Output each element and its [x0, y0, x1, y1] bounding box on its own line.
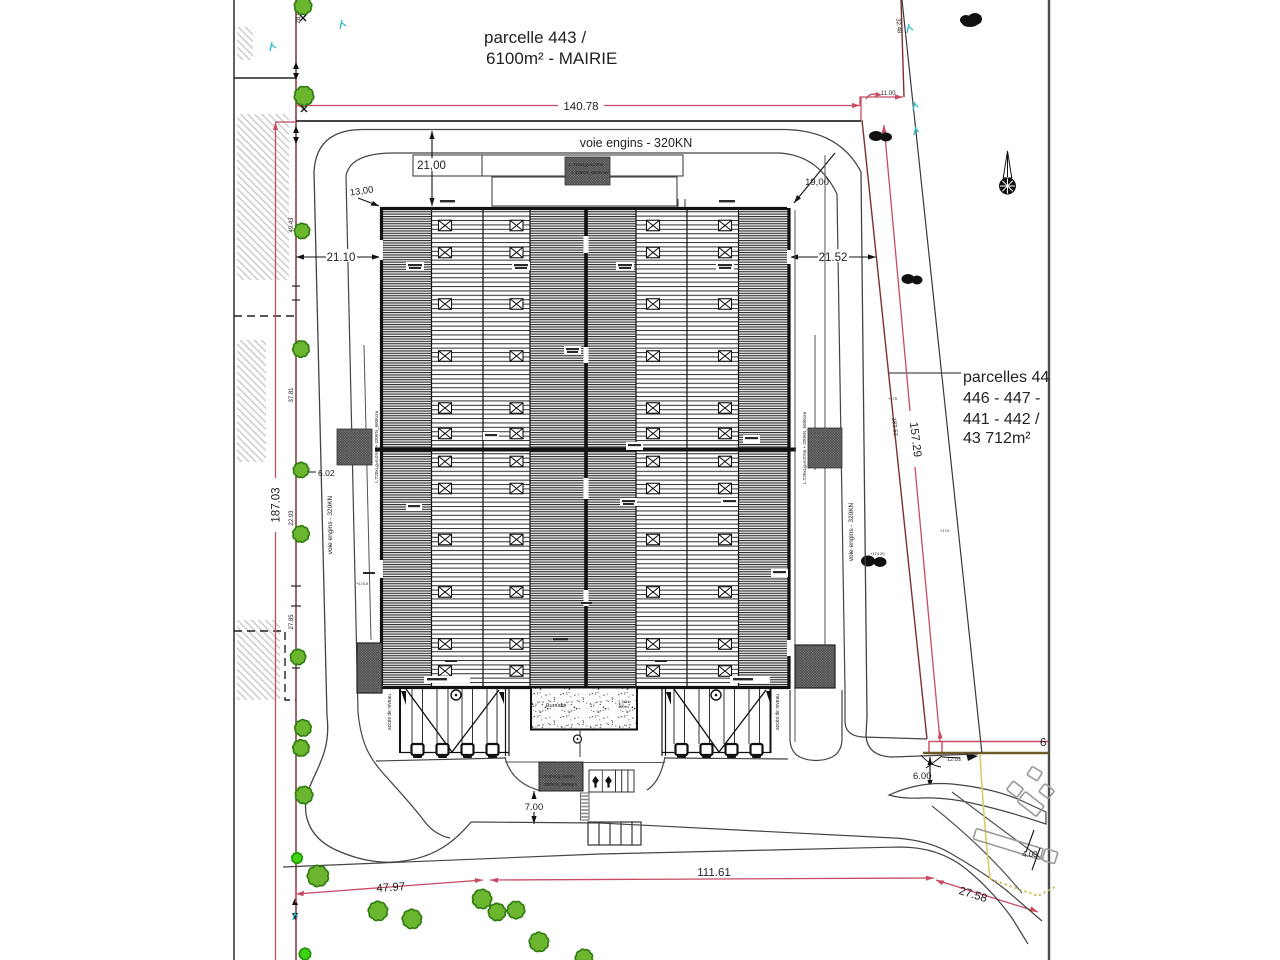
svg-text:6.00: 6.00	[913, 771, 932, 782]
svg-text:+174: +174	[940, 528, 950, 533]
svg-text:+174.20: +174.20	[870, 551, 885, 556]
svg-text:+ 320KN_660Kcm²: + 320KN_660Kcm²	[571, 170, 610, 175]
svg-text:21.10: 21.10	[327, 252, 356, 264]
svg-text:6: 6	[1040, 737, 1046, 749]
svg-text:parcelle 443 /: parcelle 443 /	[484, 28, 586, 47]
svg-text:360Kc: 360Kc	[618, 704, 629, 709]
svg-text:LT20xLg=500m: LT20xLg=500m	[542, 774, 575, 780]
svg-text:22.93: 22.93	[289, 510, 295, 526]
svg-text:L.T20xLg=6.0Ym + 320KN_660Kcm: L.T20xLg=6.0Ym + 320KN_660Kcm	[374, 411, 379, 484]
svg-text:accès de niveau: accès de niveau	[775, 694, 781, 730]
svg-text:6.02: 6.02	[318, 468, 335, 478]
svg-text:Bureaux: Bureaux	[546, 703, 567, 709]
svg-text:37.81: 37.81	[289, 387, 295, 403]
svg-text:L.T20xLg=6.0Ym: L.T20xLg=6.0Ym	[569, 162, 604, 167]
svg-text:21,00: 21,00	[417, 160, 446, 172]
svg-text:4.00: 4.00	[1022, 850, 1038, 859]
svg-text:27.85: 27.85	[289, 614, 295, 630]
svg-text:446 - 447 -: 446 - 447 -	[963, 390, 1040, 407]
svg-text:L.T20xLg=6.0Ym + 320KN_660Kcm: L.T20xLg=6.0Ym + 320KN_660Kcm	[802, 412, 807, 485]
svg-text:47.97: 47.97	[376, 881, 406, 895]
svg-text:111.61: 111.61	[697, 867, 730, 879]
svg-text:voie engins - 320KN: voie engins - 320KN	[327, 495, 334, 554]
svg-text:accès de niveau: accès de niveau	[387, 694, 393, 730]
svg-text:voie engins - 320KN: voie engins - 320KN	[848, 502, 855, 561]
svg-text:voie engins - 320KN: voie engins - 320KN	[580, 136, 693, 150]
svg-text:21.52: 21.52	[819, 252, 848, 264]
svg-text:187.03: 187.03	[271, 487, 283, 522]
svg-text:+174.5: +174.5	[356, 581, 369, 586]
svg-text:6100m² - MAIRIE: 6100m² - MAIRIE	[486, 49, 617, 68]
svg-text:+175: +175	[888, 396, 898, 401]
svg-text:43 712m²: 43 712m²	[963, 430, 1031, 447]
svg-text:140.78: 140.78	[563, 101, 598, 113]
svg-text:7.00: 7.00	[525, 802, 544, 813]
svg-text:441 - 442 /: 441 - 442 /	[963, 411, 1040, 428]
svg-text:11.00: 11.00	[881, 91, 896, 97]
svg-text:parcelles 44: parcelles 44	[963, 369, 1049, 386]
svg-text:320KN_BRsqm: 320KN_BRsqm	[544, 782, 577, 788]
